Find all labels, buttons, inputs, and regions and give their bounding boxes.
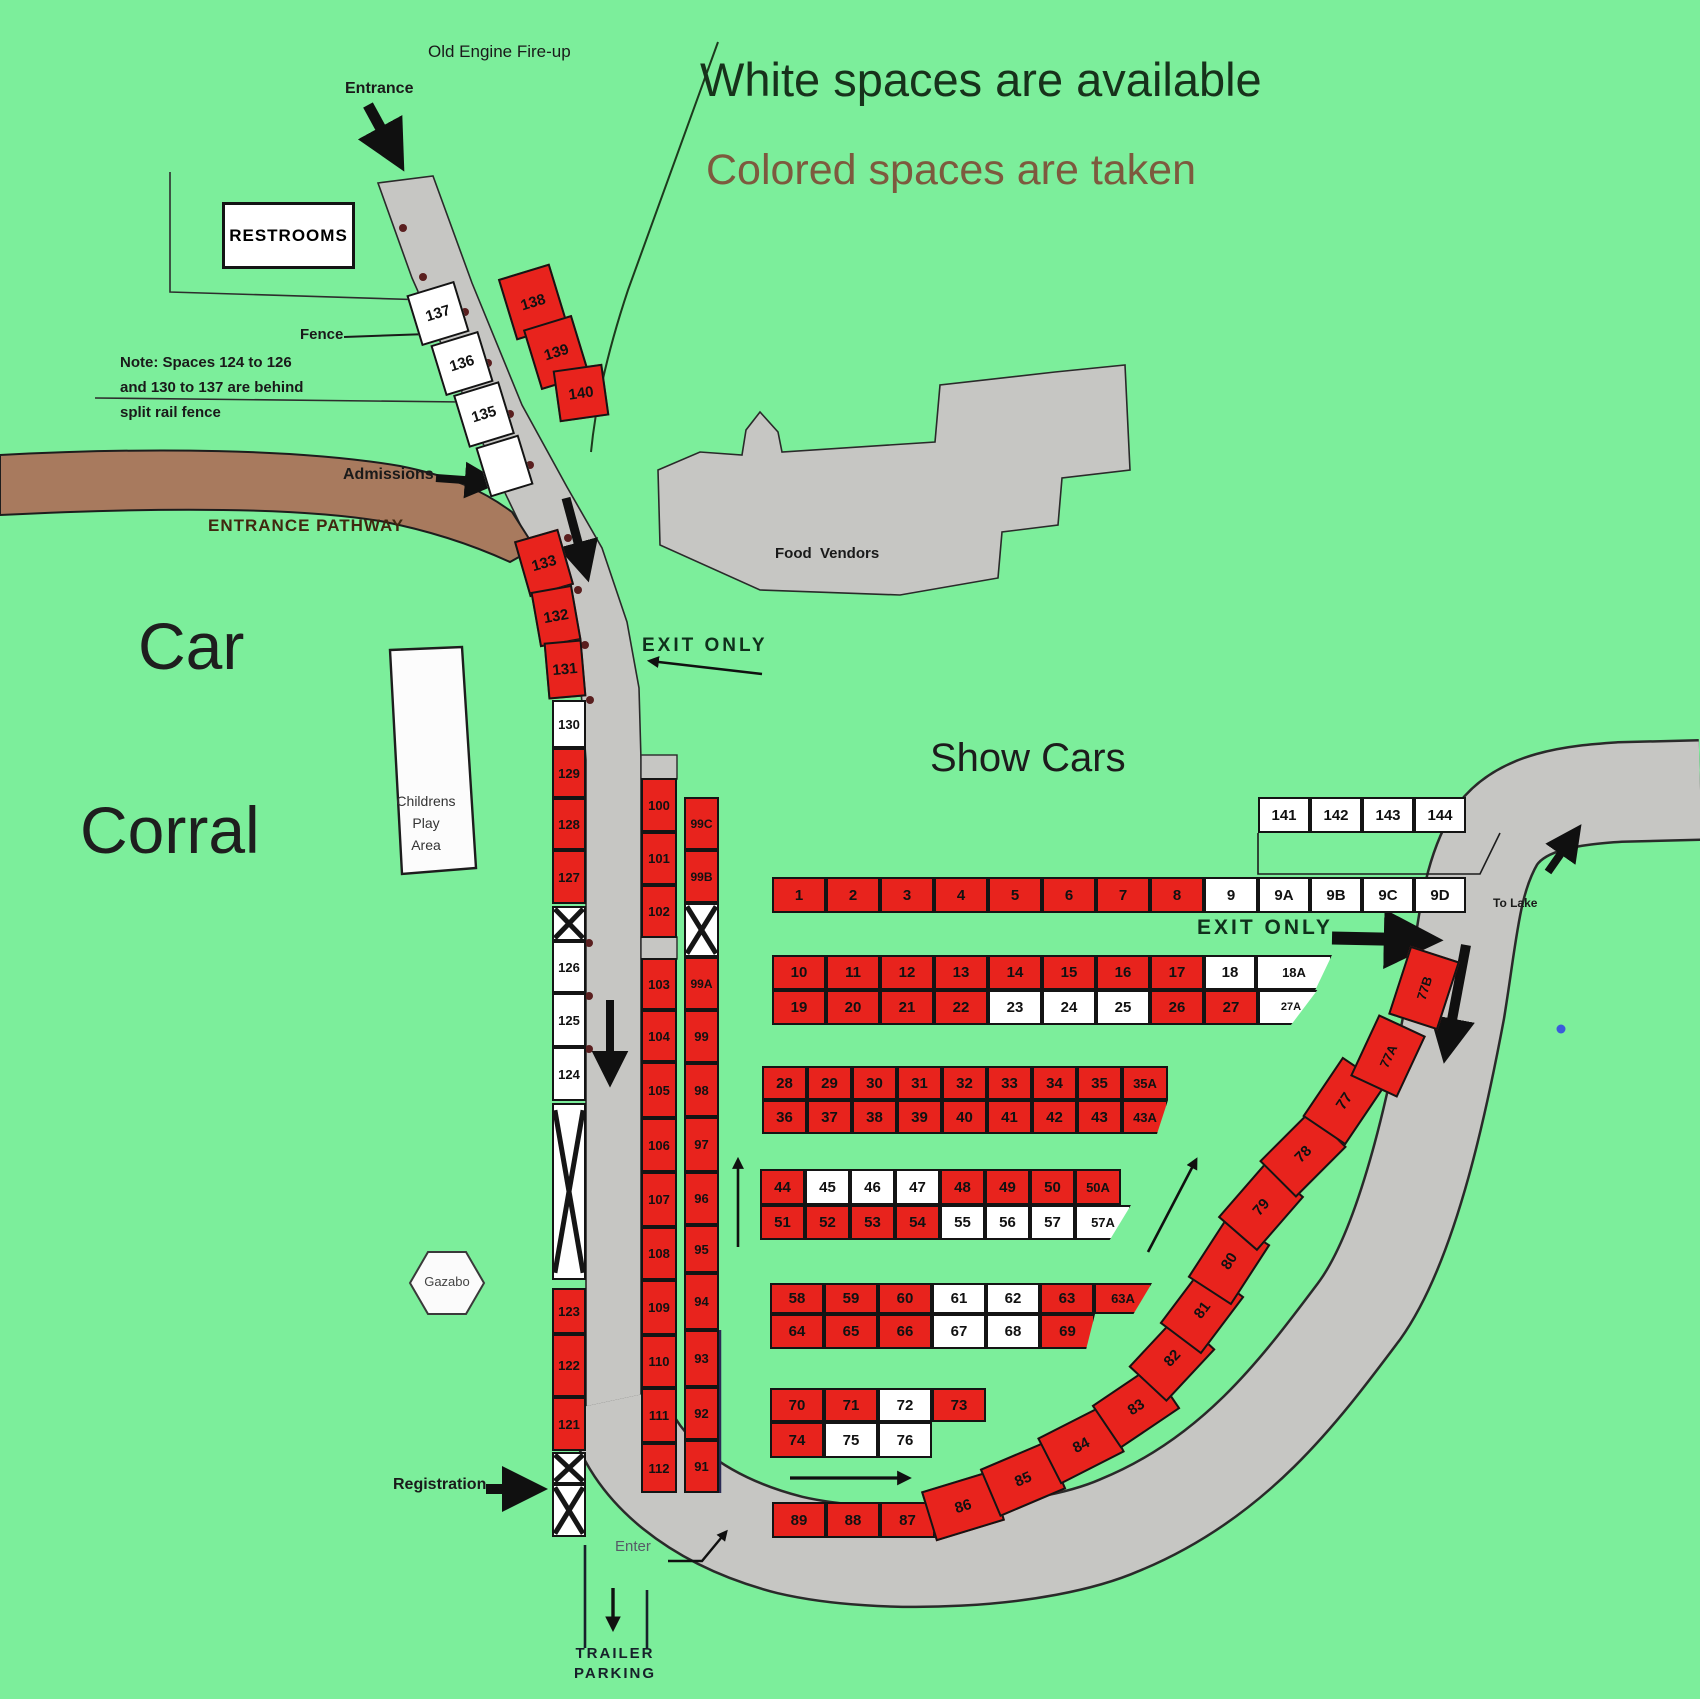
parking-space-124: 124 (552, 1047, 586, 1101)
parking-space-6: 6 (1042, 877, 1096, 913)
admissions-label: Admissions (343, 466, 434, 484)
parking-space-126: 126 (552, 941, 586, 993)
parking-space-4: 4 (934, 877, 988, 913)
parking-space-44: 44 (760, 1169, 805, 1205)
parking-space-88: 88 (826, 1502, 880, 1538)
parking-space-95: 95 (684, 1225, 719, 1273)
x-mark-icon (554, 908, 584, 939)
curve-line (591, 42, 718, 452)
parking-space-121: 121 (552, 1397, 586, 1451)
x-mark-icon (554, 1486, 584, 1535)
x-mark-icon (554, 1454, 584, 1482)
parking-space-55: 55 (940, 1205, 985, 1240)
parking-space-73: 73 (932, 1388, 986, 1422)
parking-space-24: 24 (1042, 990, 1096, 1025)
parking-space-34: 34 (1032, 1066, 1077, 1100)
parking-space-7: 7 (1096, 877, 1150, 913)
enter-label: Enter (615, 1538, 651, 1555)
parking-space-89: 89 (772, 1502, 826, 1538)
parking-space-63: 63 (1040, 1283, 1094, 1314)
parking-space-143: 143 (1362, 797, 1414, 833)
blocked-space (552, 1103, 586, 1280)
parking-space-43: 43 (1077, 1100, 1122, 1134)
exit-only-left-arrow (650, 661, 762, 674)
parking-space-51: 51 (760, 1205, 805, 1240)
entrance-pathway-label: ENTRANCE PATHWAY (208, 516, 404, 536)
parking-space-123: 123 (552, 1288, 586, 1334)
parking-space-67: 67 (932, 1314, 986, 1349)
parking-space-129: 129 (552, 748, 586, 798)
road-cap (641, 755, 677, 779)
parking-space-131: 131 (544, 639, 587, 699)
parking-space-74: 74 (770, 1422, 824, 1458)
parking-space-27: 27 (1204, 990, 1258, 1025)
parking-space-2: 2 (826, 877, 880, 913)
parking-space-40: 40 (942, 1100, 987, 1134)
parking-space-56: 56 (985, 1205, 1030, 1240)
parking-space-20: 20 (826, 990, 880, 1025)
parking-space-28: 28 (762, 1066, 807, 1100)
parking-space-72: 72 (878, 1388, 932, 1422)
parking-space-109: 109 (641, 1280, 677, 1335)
parking-space-48: 48 (940, 1169, 985, 1205)
parking-space-35A: 35A (1122, 1066, 1168, 1100)
parking-space-60: 60 (878, 1283, 932, 1314)
parking-space-100: 100 (641, 778, 677, 832)
parking-space-61: 61 (932, 1283, 986, 1314)
parking-space-112: 112 (641, 1443, 677, 1493)
parking-space-30: 30 (852, 1066, 897, 1100)
parking-space-58: 58 (770, 1283, 824, 1314)
parking-space-76: 76 (878, 1422, 932, 1458)
parking-space-122: 122 (552, 1334, 586, 1397)
entrance-arrow (368, 105, 398, 160)
parking-space-39: 39 (897, 1100, 942, 1134)
show-cars-title: Show Cars (930, 736, 1126, 781)
parking-space-32: 32 (942, 1066, 987, 1100)
parking-space-102: 102 (641, 885, 677, 938)
exit-only-left-label: EXIT ONLY (642, 635, 768, 657)
parking-space-5: 5 (988, 877, 1042, 913)
fence-label: Fence (300, 326, 343, 343)
parking-space-68: 68 (986, 1314, 1040, 1349)
parking-space-18: 18 (1204, 955, 1256, 990)
parking-space-49: 49 (985, 1169, 1030, 1205)
parking-space-64: 64 (770, 1314, 824, 1349)
parking-space-91: 91 (684, 1440, 719, 1493)
parking-space-17: 17 (1150, 955, 1204, 990)
parking-space-25: 25 (1096, 990, 1150, 1025)
parking-space-101: 101 (641, 832, 677, 885)
parking-space-36: 36 (762, 1100, 807, 1134)
parking-space-128: 128 (552, 798, 586, 850)
flow-arrow-up-right (1148, 1160, 1196, 1252)
parking-space-99B: 99B (684, 850, 719, 903)
parking-space-104: 104 (641, 1010, 677, 1062)
parking-space-106: 106 (641, 1118, 677, 1172)
parking-space-29: 29 (807, 1066, 852, 1100)
parking-space-105: 105 (641, 1062, 677, 1118)
parking-space-9A: 9A (1258, 877, 1310, 913)
x-mark-icon (554, 1105, 584, 1278)
parking-space-54: 54 (895, 1205, 940, 1240)
parking-space-99C: 99C (684, 797, 719, 850)
car-corral-title-line2: Corral (80, 792, 260, 868)
parking-space-41: 41 (987, 1100, 1032, 1134)
parking-space-42: 42 (1032, 1100, 1077, 1134)
trailer-parking-lines (585, 1545, 647, 1648)
parking-space-130: 130 (552, 700, 586, 748)
parking-space-75: 75 (824, 1422, 878, 1458)
parking-space-16: 16 (1096, 955, 1150, 990)
parking-space-98: 98 (684, 1063, 719, 1117)
parking-space-66: 66 (878, 1314, 932, 1349)
legend-available-text: White spaces are available (700, 52, 1262, 107)
parking-space-69: 69 (1040, 1314, 1095, 1349)
parking-space-97: 97 (684, 1117, 719, 1172)
food-vendors-label: Food Vendors (775, 545, 879, 562)
parking-space-26: 26 (1150, 990, 1204, 1025)
parking-space-65: 65 (824, 1314, 878, 1349)
road-gap (641, 937, 677, 959)
trailer-parking-label: TRAILERPARKING (560, 1644, 670, 1684)
parking-space-1: 1 (772, 877, 826, 913)
parking-space-144: 144 (1414, 797, 1466, 833)
parking-space-127: 127 (552, 850, 586, 904)
parking-space-15: 15 (1042, 955, 1096, 990)
parking-space-93: 93 (684, 1330, 719, 1387)
childrens-play-area-label: ChildrensPlayArea (377, 790, 475, 856)
parking-space-35: 35 (1077, 1066, 1122, 1100)
x-mark-icon (686, 905, 717, 955)
parking-space-46: 46 (850, 1169, 895, 1205)
parking-space-92: 92 (684, 1387, 719, 1440)
to-lake-label: To Lake (1493, 896, 1537, 910)
parking-space-33: 33 (987, 1066, 1032, 1100)
parking-space-12: 12 (880, 955, 934, 990)
parking-space-14: 14 (988, 955, 1042, 990)
parking-space-23: 23 (988, 990, 1042, 1025)
parking-space-111: 111 (641, 1388, 677, 1443)
parking-space-140: 140 (553, 364, 610, 422)
parking-space-37: 37 (807, 1100, 852, 1134)
note-text: Note: Spaces 124 to 126and 130 to 137 ar… (120, 350, 303, 425)
parking-space-141: 141 (1258, 797, 1310, 833)
parking-space-59: 59 (824, 1283, 878, 1314)
car-show-parking-map: 1371361351381391401331321311301291281271… (0, 0, 1700, 1699)
parking-space-9D: 9D (1414, 877, 1466, 913)
old-engine-fireup-label: Old Engine Fire-up (428, 42, 571, 62)
entrance-pathway-road (0, 450, 535, 562)
blocked-space (684, 903, 719, 957)
parking-space-38: 38 (852, 1100, 897, 1134)
parking-space-108: 108 (641, 1227, 677, 1280)
exit-only-right-arrow (1332, 938, 1428, 940)
parking-space-10: 10 (772, 955, 826, 990)
fence-pointer-line (344, 334, 428, 337)
parking-space-19: 19 (772, 990, 826, 1025)
parking-space-3: 3 (880, 877, 934, 913)
parking-space-99A: 99A (684, 957, 719, 1010)
parking-space-9C: 9C (1362, 877, 1414, 913)
blocked-space (552, 1484, 586, 1537)
parking-space-52: 52 (805, 1205, 850, 1240)
parking-space-142: 142 (1310, 797, 1362, 833)
legend-taken-text: Colored spaces are taken (706, 146, 1196, 195)
admissions-arrow (436, 478, 492, 482)
parking-space-45: 45 (805, 1169, 850, 1205)
parking-space-9: 9 (1204, 877, 1258, 913)
parking-space-22: 22 (934, 990, 988, 1025)
parking-space-99: 99 (684, 1010, 719, 1063)
registration-label: Registration (393, 1476, 486, 1494)
parking-space-94: 94 (684, 1273, 719, 1330)
parking-space-11: 11 (826, 955, 880, 990)
parking-space-21: 21 (880, 990, 934, 1025)
parking-space-13: 13 (934, 955, 988, 990)
entrance-label: Entrance (345, 80, 413, 98)
parking-space-110: 110 (641, 1335, 677, 1388)
car-corral-title-line1: Car (138, 608, 244, 684)
parking-space-71: 71 (824, 1388, 878, 1422)
parking-space-47: 47 (895, 1169, 940, 1205)
parking-space-50: 50 (1030, 1169, 1075, 1205)
parking-space-70: 70 (770, 1388, 824, 1422)
parking-space-9B: 9B (1310, 877, 1362, 913)
parking-space-57: 57 (1030, 1205, 1075, 1240)
parking-space-107: 107 (641, 1172, 677, 1227)
parking-space-53: 53 (850, 1205, 895, 1240)
parking-space-125: 125 (552, 993, 586, 1047)
exit-only-right-label: EXIT ONLY (1197, 916, 1333, 940)
parking-space-8: 8 (1150, 877, 1204, 913)
parking-space-50A: 50A (1075, 1169, 1121, 1205)
parking-space-96: 96 (684, 1172, 719, 1225)
gazebo-label: Gazabo (410, 1274, 484, 1289)
parking-space-31: 31 (897, 1066, 942, 1100)
parking-space-103: 103 (641, 958, 677, 1010)
restrooms-building: RESTROOMS (222, 202, 355, 269)
blocked-space (552, 1452, 586, 1484)
food-vendors-area (658, 365, 1130, 595)
parking-space-62: 62 (986, 1283, 1040, 1314)
blocked-space (552, 906, 586, 941)
blue-dot (1557, 1025, 1566, 1034)
